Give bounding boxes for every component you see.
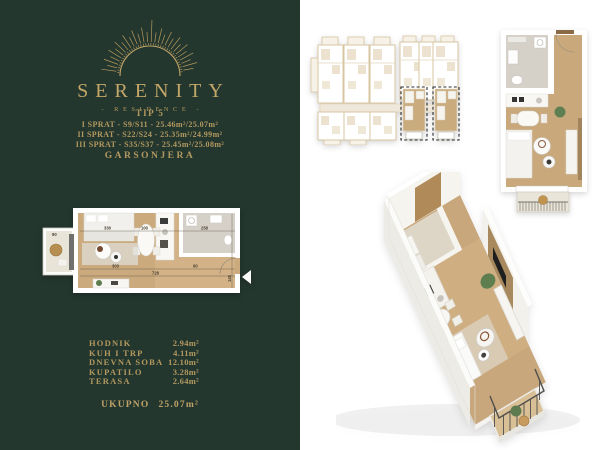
total-label: UKUPNO <box>101 400 149 410</box>
brand-logo: SERENITY - RESIDENCE - <box>0 20 300 113</box>
dimension-label: 90 <box>193 264 198 269</box>
room-row-terasa: TERASA 2.64m² <box>89 377 199 387</box>
right-panel <box>300 0 600 450</box>
floor-line-2: II SPRAT - S22/S24 - 25.35m²/24.99m² <box>0 130 300 140</box>
highlighted-unit-2 <box>433 87 459 140</box>
floor-line-1: I SPRAT - S9/S11 - 25.46m²/25.07m² <box>0 120 300 130</box>
dimension-label: 728 <box>152 271 160 276</box>
brand-name: SERENITY <box>0 80 300 103</box>
room-list: HODNIK 2.94m² KUH I TRP 4.11m² DNEVNA SO… <box>89 339 199 387</box>
left-panel: SERENITY - RESIDENCE - TIP 5 I SPRAT - S… <box>0 0 300 450</box>
dimension-label: 145 <box>227 274 232 282</box>
unit-kind-label: GARSONJERA <box>0 151 300 161</box>
room-area: 2.64m² <box>173 377 199 387</box>
floor-line-3: III SPRAT - S35/S37 - 25.45m²/25.08m² <box>0 140 300 150</box>
unit-type-label: TIP 5 <box>0 108 300 118</box>
apartment-3d-view <box>336 172 600 448</box>
sun-rays-icon <box>75 20 225 78</box>
brochure-page: SERENITY - RESIDENCE - TIP 5 I SPRAT - S… <box>0 0 600 450</box>
terrace-table <box>50 244 62 256</box>
building-overview-plan <box>308 25 468 145</box>
dimension-label: 100 <box>141 226 149 231</box>
unit-info-block: TIP 5 I SPRAT - S9/S11 - 25.46m²/25.07m²… <box>0 108 300 161</box>
dimension-label: 90 <box>52 232 57 237</box>
floorplan-2d-image: 90 <box>38 202 252 302</box>
total-row: UKUPNO 25.07m² <box>89 400 199 410</box>
highlighted-unit-1 <box>401 87 427 140</box>
room-name: TERASA <box>89 377 131 387</box>
total-value: 25.07m² <box>158 400 199 410</box>
dimension-label: 303 <box>112 264 120 269</box>
dimension-label: 258 <box>201 226 209 231</box>
bathroom-area <box>179 213 235 257</box>
dimension-label: 330 <box>104 226 112 231</box>
entrance-arrow-icon <box>242 270 251 284</box>
